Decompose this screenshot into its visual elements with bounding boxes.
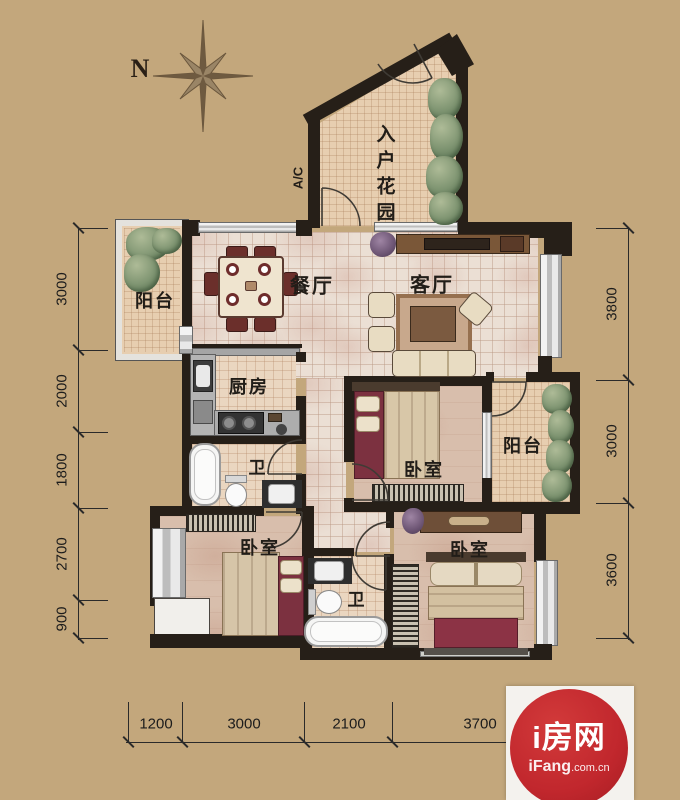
kitchen-item-pot [276, 424, 287, 435]
kitchen-sink-basin [196, 365, 210, 387]
dim-bottom-3700: 3700 [463, 716, 496, 733]
dim-left-2000: 2000 [54, 374, 71, 407]
sink-upper [268, 484, 295, 504]
kitchen-item-board [268, 413, 282, 422]
dining-chair-bottom-2 [254, 317, 276, 332]
dim-right-3600: 3600 [604, 553, 621, 586]
room-label-living: 客厅 [410, 269, 454, 298]
window-bedroom-mid-right [482, 412, 492, 480]
room-label-kitchen: 厨房 [229, 373, 269, 399]
bed-mid-headboard [352, 382, 440, 391]
dining-plate-3 [226, 293, 239, 306]
door-balcony-left [179, 326, 193, 354]
floor-hallway-vertical [306, 378, 346, 508]
room-label-balcony-left: 阳台 [135, 287, 175, 313]
coffee-table [410, 306, 456, 342]
wardrobe-bedroom-right [392, 564, 419, 648]
sofa [392, 350, 476, 377]
dining-chair-left [204, 272, 219, 296]
bed-right-duvet [428, 586, 524, 620]
wall-bedroom-right-left-stub [386, 512, 394, 528]
stove-burner-2 [242, 416, 256, 430]
toilet-lower-tank [308, 589, 316, 615]
wall-bedroom-left-bottom [150, 634, 312, 648]
watermark-logo: i房网 iFang.com.cn [506, 686, 634, 800]
compass-star-shadow [200, 20, 206, 76]
room-label-bedroom-left: 卧室 [240, 534, 280, 560]
watermark-brand: i房网 [510, 712, 628, 757]
tv [424, 238, 490, 250]
bed-mid-pillow-1 [356, 396, 380, 412]
bed-left-duvet [222, 552, 280, 636]
room-label-bath-lower: 卫 [348, 586, 367, 611]
room-label-bedroom-right: 卧室 [450, 536, 490, 562]
room-label-bedroom-mid: 卧室 [404, 456, 444, 482]
bathtub-lower-inner [310, 621, 382, 642]
dining-plate-2 [258, 263, 271, 276]
dining-chair-bottom-1 [226, 317, 248, 332]
dim-right-3800: 3800 [604, 287, 621, 320]
bed-mid-pillow-2 [356, 416, 380, 432]
wall-bedroom-mid-left-upper [344, 386, 354, 462]
compass-star [153, 20, 253, 132]
ac-label: A/C [291, 167, 306, 189]
room-label-balcony-right: 阳台 [503, 432, 543, 458]
wall-top-right-corner [544, 222, 572, 256]
dining-plate-4 [258, 293, 271, 306]
toilet-upper-tank [225, 475, 247, 483]
bathtub-upper-inner [194, 449, 216, 500]
bed-right-bench [424, 648, 528, 655]
wall-bedroom-mid-right-lower [482, 478, 492, 504]
sideboard-dish [448, 516, 490, 526]
watermark-site-suffix: .com.cn [571, 762, 610, 774]
stove-burner-1 [222, 416, 236, 430]
dim-left-3000: 3000 [54, 272, 71, 305]
watermark-site: iFang.com.cn [510, 758, 628, 776]
wardrobe-bedroom-left [186, 514, 256, 532]
sink-lower [314, 561, 344, 581]
bed-left-pillow-2 [280, 578, 302, 593]
armchair-2 [368, 326, 395, 352]
kitchen-appliance [193, 400, 213, 424]
dining-plate-1 [226, 263, 239, 276]
room-label-bath-upper: 卫 [249, 454, 268, 479]
dim-bottom-1200: 1200 [139, 716, 172, 733]
wall-balcony-right-top-a [486, 372, 494, 382]
bed-right-pillows [430, 562, 522, 586]
cabinet-bedroom-mid [372, 484, 464, 502]
dimension-line-right [628, 228, 629, 640]
wall-balcony-right-side [570, 372, 580, 512]
tv-decor-right [500, 236, 524, 252]
wall-bath-lower-top [306, 548, 354, 556]
wall-kitchen-right-upper [296, 352, 306, 362]
wall-top-mid [296, 220, 312, 236]
room-label-dining: 餐厅 [290, 270, 334, 299]
window-dining-top [198, 222, 298, 233]
dim-left-2700: 2700 [54, 537, 71, 570]
watermark-site-bold: iFang [528, 758, 571, 775]
wall-garden-left [308, 120, 320, 228]
toilet-lower-bowl [316, 590, 342, 614]
floor-plan-canvas: N 入户花园 A/C 餐厅 客厅 阳台 厨房 卫 卧室 阳台 卧室 卧室 卫 3… [0, 0, 680, 800]
dim-bottom-3000: 3000 [227, 716, 260, 733]
toilet-upper-bowl [225, 483, 247, 507]
window-living-right [540, 254, 562, 358]
dim-right-3000: 3000 [604, 424, 621, 457]
window-bedroom-left [152, 528, 186, 598]
bed-left-pillow-1 [280, 560, 302, 575]
dim-left-900: 900 [54, 606, 71, 631]
dim-bottom-2100: 2100 [332, 716, 365, 733]
dining-centerpiece [245, 281, 257, 291]
bed-right-red-foot [434, 618, 518, 648]
armchair-1 [368, 292, 395, 318]
wall-bedroom-mid-right-upper [482, 386, 492, 414]
window-bedroom-right [536, 560, 558, 646]
compass-north-label: N [131, 54, 152, 84]
platform-bottom-left [154, 598, 210, 638]
wall-bedroom-right-side-upper [534, 512, 546, 562]
dim-left-1800: 1800 [54, 453, 71, 486]
room-label-entry-garden: 入户花园 [371, 124, 398, 228]
